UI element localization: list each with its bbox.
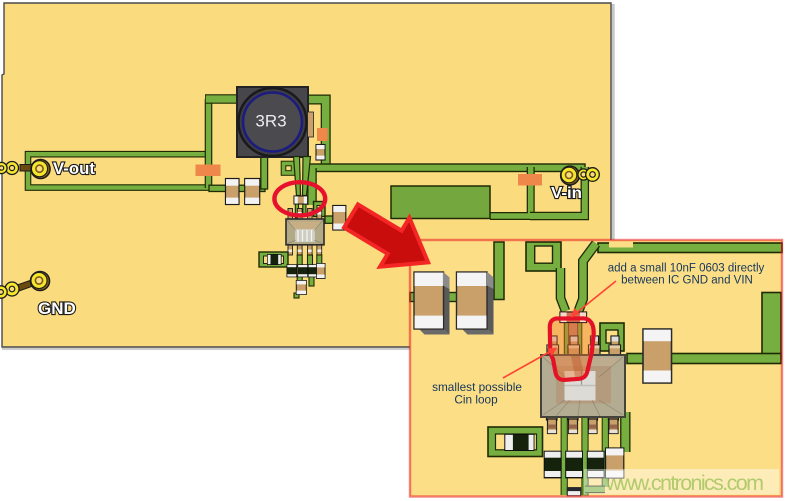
svg-text:between IC GND and VIN: between IC GND and VIN (621, 275, 753, 287)
svg-text:3R3: 3R3 (255, 112, 286, 131)
svg-text:add a small 10nF 0603 directly: add a small 10nF 0603 directly (608, 263, 765, 275)
svg-text:GND: GND (38, 299, 76, 318)
svg-text:www.cntronics.com: www.cntronics.com (605, 471, 764, 495)
svg-text:Cin loop: Cin loop (454, 393, 498, 407)
svg-text:V-out: V-out (53, 159, 95, 178)
svg-text:V-in: V-in (551, 185, 582, 202)
